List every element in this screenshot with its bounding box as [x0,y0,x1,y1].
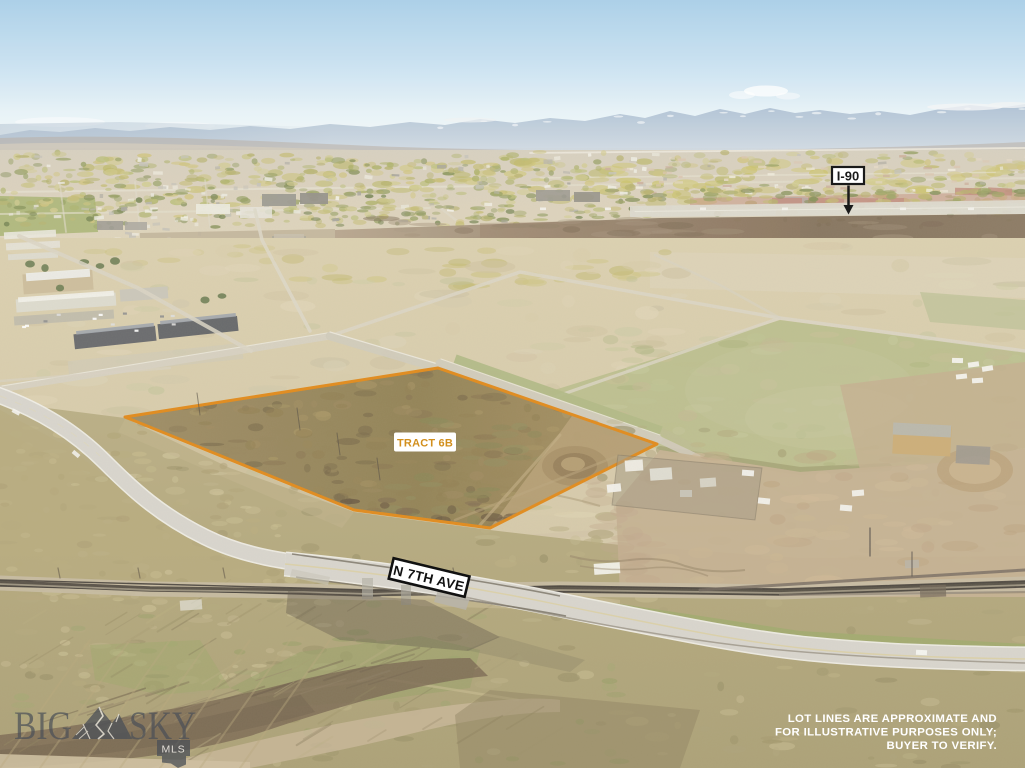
svg-text:FOR ILLUSTRATIVE PURPOSES ONLY: FOR ILLUSTRATIVE PURPOSES ONLY; [775,727,997,739]
svg-text:LOT LINES ARE APPROXIMATE AND: LOT LINES ARE APPROXIMATE AND [788,713,997,725]
svg-text:TRACT 6B: TRACT 6B [397,438,453,450]
svg-text:MLS: MLS [162,744,186,756]
svg-text:I-90: I-90 [837,169,859,184]
svg-text:BUYER TO VERIFY.: BUYER TO VERIFY. [887,740,997,752]
svg-text:BIG: BIG [14,703,72,747]
